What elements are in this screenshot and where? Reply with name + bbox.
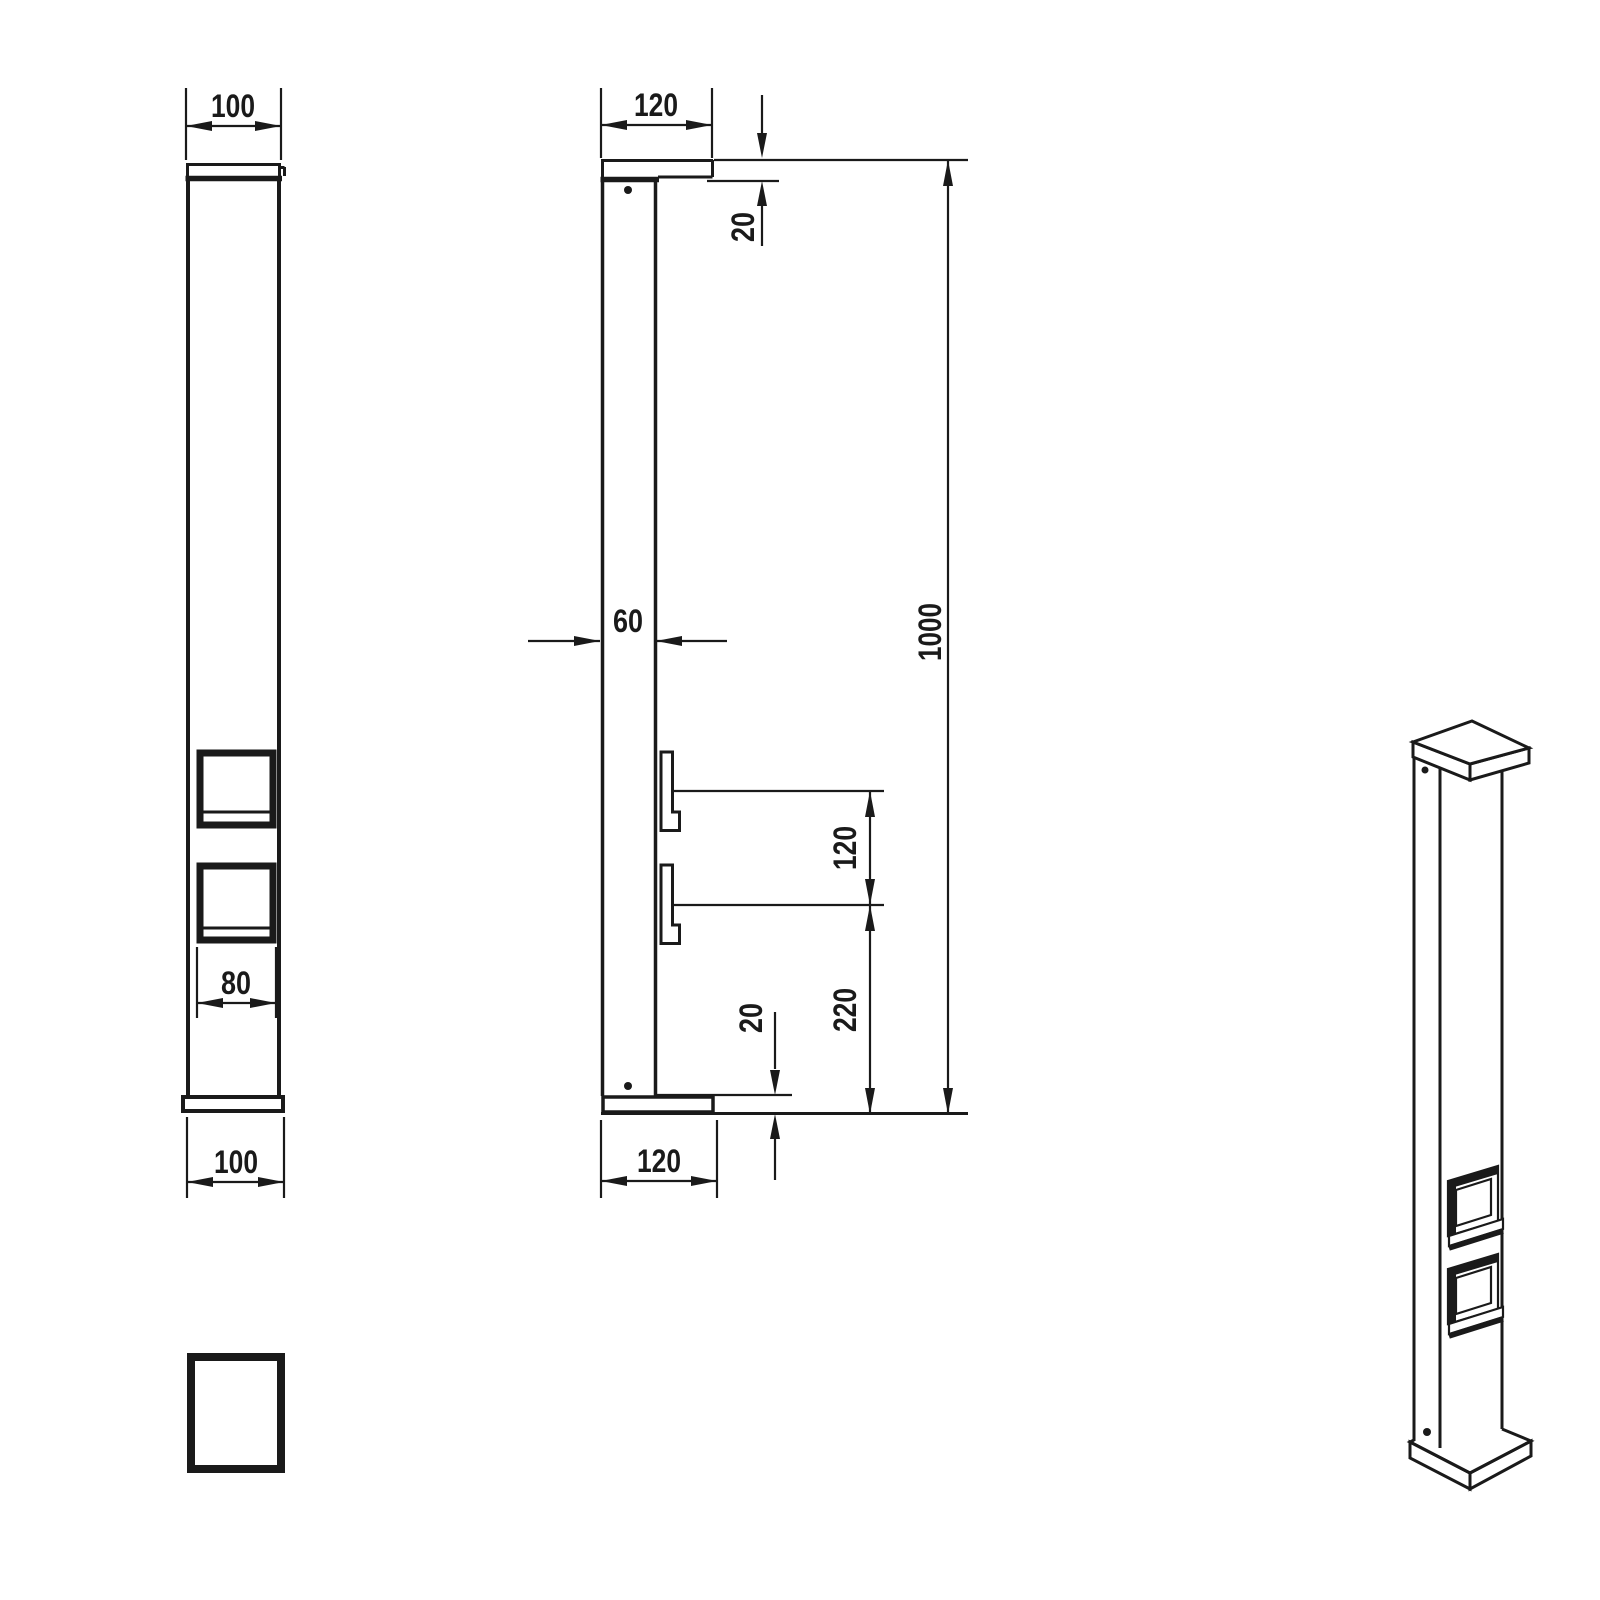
iso-base — [1410, 1429, 1531, 1489]
dim-label-socket-height: 220 — [827, 988, 863, 1032]
rivet-dot-top — [624, 186, 632, 194]
side-dim-cap-thickness: 20 — [725, 95, 767, 246]
arrowheads — [757, 133, 767, 206]
side-view: 120 20 120 — [528, 87, 968, 1198]
arrowheads — [770, 1070, 780, 1139]
iso-cap — [1413, 721, 1529, 780]
dim-label-front-bottom-width: 100 — [214, 1144, 258, 1180]
side-dim-top-width: 120 — [601, 87, 712, 158]
dim-label-total-height: 1000 — [912, 603, 948, 661]
technical-drawing-canvas: 100 80 — [0, 0, 1600, 1600]
side-base-plate — [603, 1097, 713, 1112]
isometric-view — [1410, 721, 1531, 1489]
front-socket-upper — [200, 753, 273, 825]
socket-frame — [200, 753, 273, 825]
side-dim-base-thickness: 20 — [733, 1003, 780, 1180]
dim-label-side-bottom-width: 120 — [637, 1143, 681, 1179]
side-dim-bottom-width: 120 — [601, 1120, 717, 1198]
dim-label-socket-spacing: 120 — [827, 826, 863, 870]
front-pole-body — [188, 179, 279, 1096]
front-view: 100 80 — [183, 88, 285, 1198]
iso-socket-upper — [1448, 1166, 1503, 1248]
rivet-dot-top — [1422, 767, 1429, 774]
side-dim-socket-spacing: 120 — [827, 791, 875, 905]
side-cap — [601, 160, 714, 180]
front-dim-socket-width: 80 — [197, 947, 276, 1018]
base-side-right — [1470, 1441, 1531, 1489]
cross-section-outline — [191, 1357, 281, 1469]
front-base-plate — [183, 1097, 283, 1111]
socket-left-band — [1448, 1179, 1456, 1237]
side-dim-body-depth: 60 — [528, 603, 727, 646]
rivet-dot-bottom — [624, 1082, 632, 1090]
front-socket-lower — [200, 866, 273, 940]
side-dim-total-height: 1000 — [912, 160, 953, 1114]
dim-label-body-depth: 60 — [613, 603, 643, 639]
base-side-left — [1410, 1442, 1470, 1489]
front-dim-top-width: 100 — [186, 88, 281, 160]
rivet-dot-bottom — [1423, 1428, 1431, 1436]
front-cap — [186, 164, 285, 179]
dim-label-side-top-width: 120 — [634, 87, 678, 123]
side-dim-socket-height: 220 — [827, 905, 875, 1114]
iso-pole-edges — [1414, 756, 1502, 1448]
dim-label-front-top-width: 100 — [211, 88, 255, 124]
dim-label-base-thickness: 20 — [733, 1003, 769, 1033]
dim-label-cap-thickness: 20 — [725, 212, 761, 242]
front-dim-bottom-width: 100 — [187, 1117, 284, 1198]
dim-label-front-socket-width: 80 — [221, 965, 251, 1001]
cap-outline — [601, 160, 713, 179]
iso-socket-lower — [1448, 1254, 1503, 1336]
